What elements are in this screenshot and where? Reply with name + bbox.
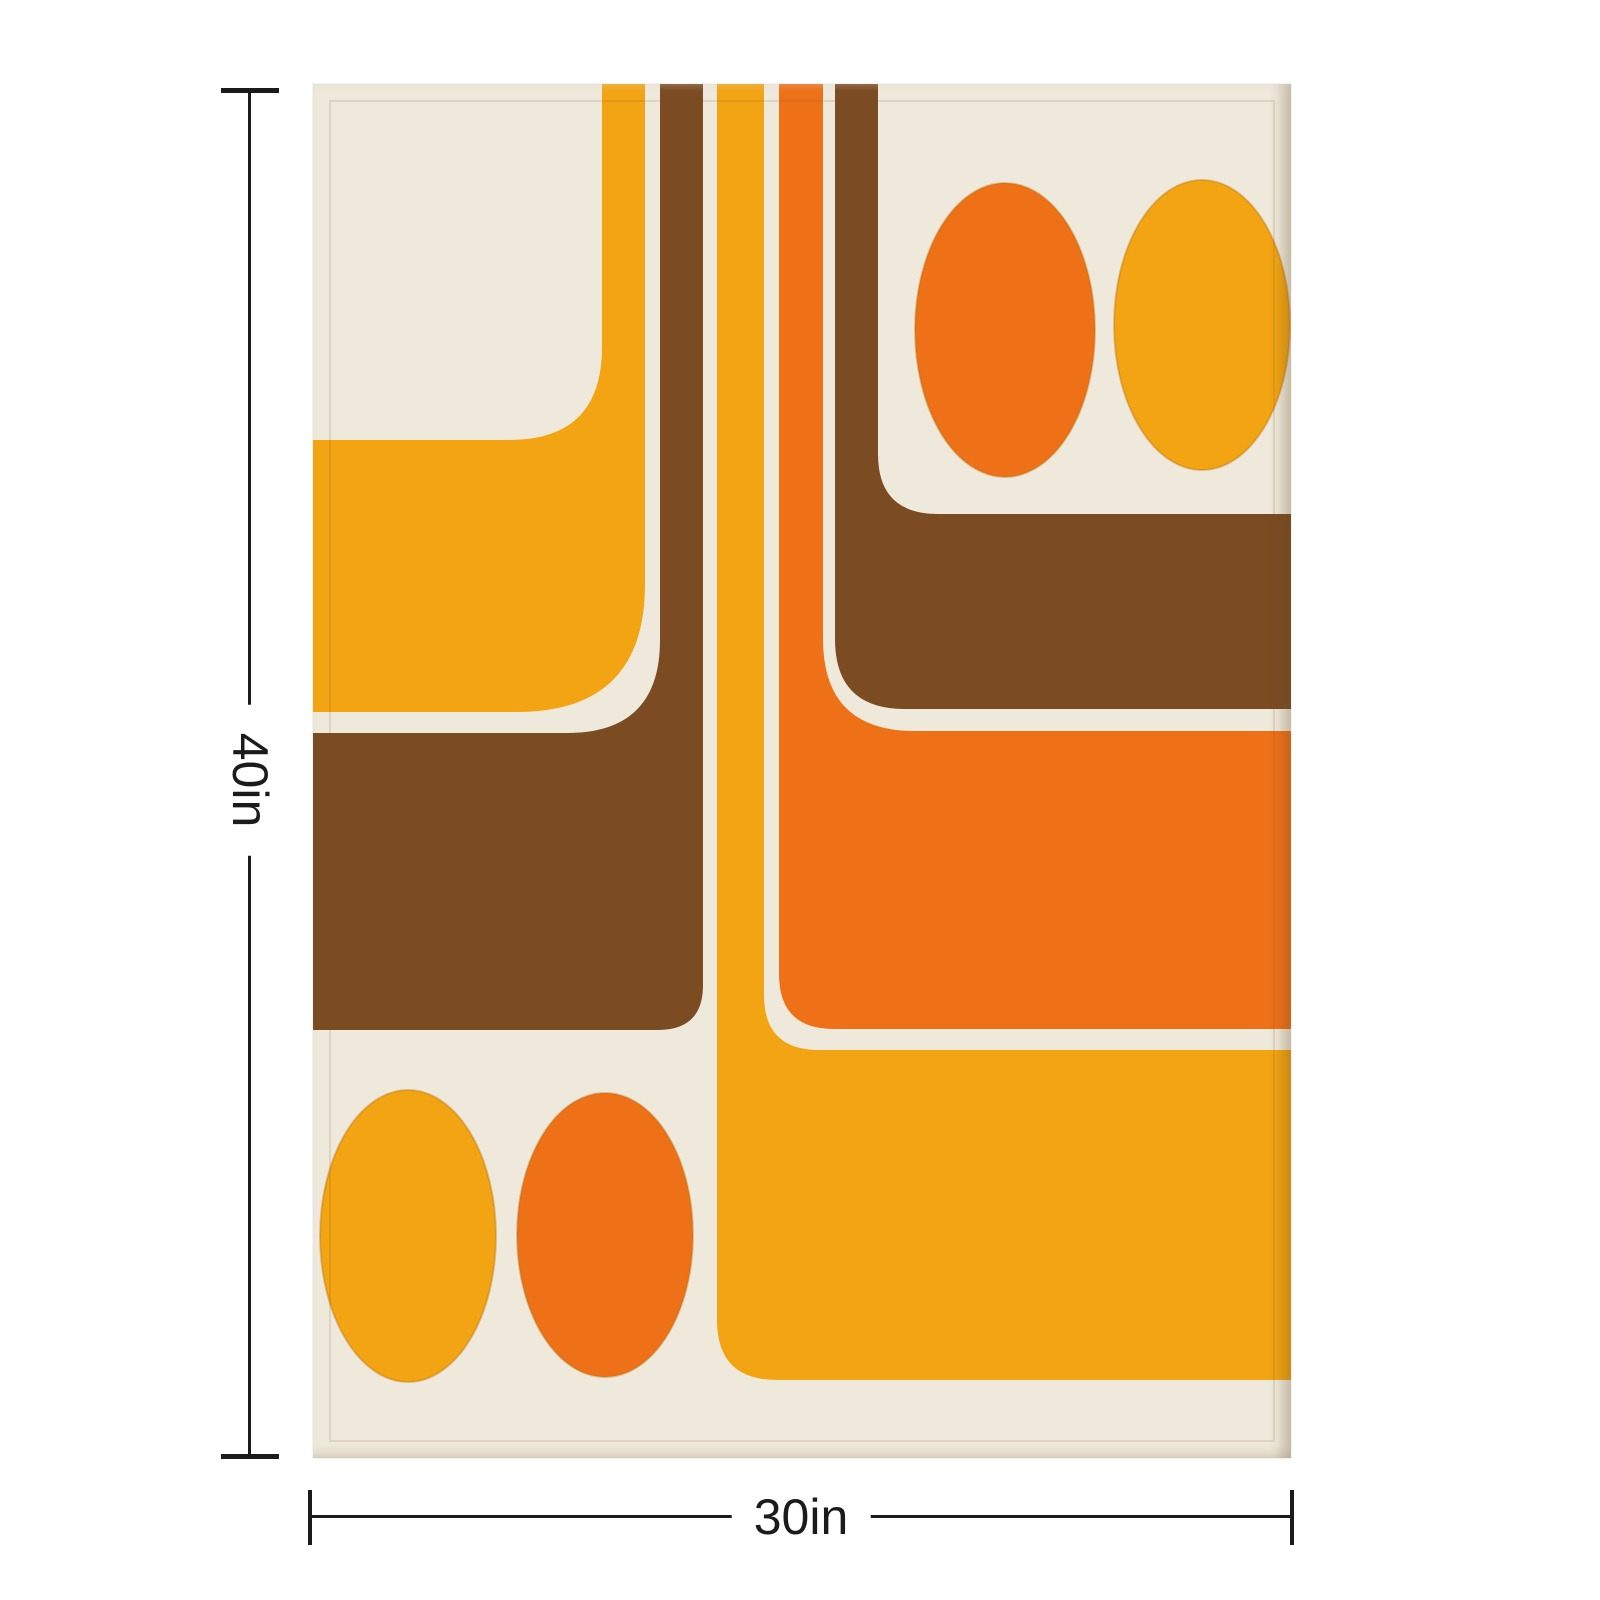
blanket-artwork bbox=[313, 84, 1291, 1458]
width-dimension-right-tick bbox=[1290, 1490, 1294, 1545]
orange-oval-top-right bbox=[915, 183, 1095, 477]
width-dimension-label: 30in bbox=[732, 1486, 871, 1548]
width-dimension-left-tick bbox=[308, 1490, 312, 1545]
height-dimension-label: 40in bbox=[217, 705, 283, 856]
product-mockup: 40in 30in bbox=[0, 0, 1600, 1600]
yellow-oval-bottom-left bbox=[320, 1090, 496, 1382]
yellow-oval-top-right bbox=[1114, 180, 1290, 470]
blanket-preview bbox=[313, 84, 1291, 1458]
height-dimension-bottom-tick bbox=[221, 1454, 279, 1459]
height-dimension-top-tick bbox=[221, 88, 279, 93]
orange-oval-bottom-left bbox=[517, 1093, 693, 1377]
